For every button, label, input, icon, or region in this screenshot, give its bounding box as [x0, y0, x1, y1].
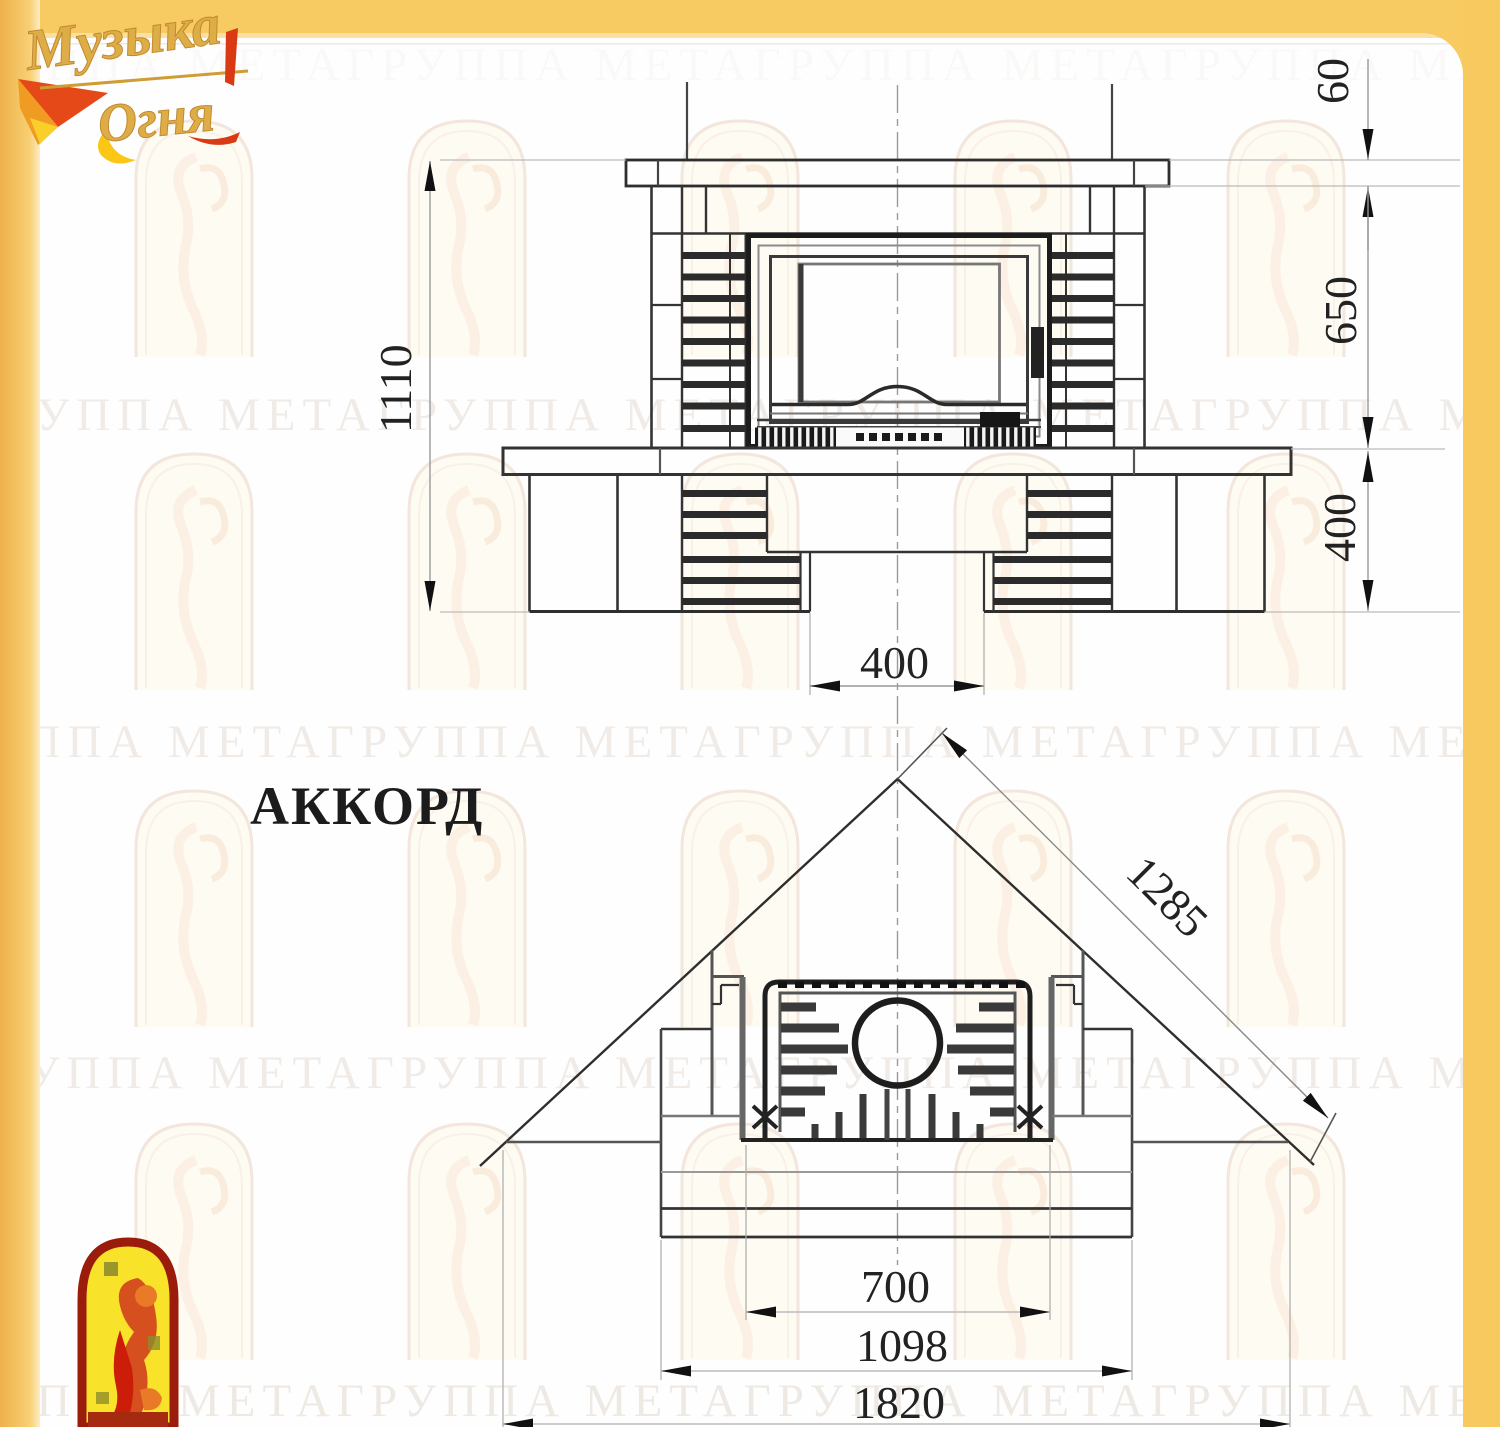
svg-text:60: 60	[1307, 58, 1358, 104]
svg-text:ГРУППА МЕТАГРУППА МЕТАГРУППА М: ГРУППА МЕТАГРУППА МЕТАГРУППА МЕТАГРУППА …	[0, 716, 1500, 768]
svg-text:700: 700	[861, 1261, 930, 1312]
svg-text:ГРУППА МЕТАГРУППА МЕТАГРУППА М: ГРУППА МЕТАГРУППА МЕТАГРУППА МЕТАГРУППА …	[0, 39, 1500, 91]
svg-text:400: 400	[1314, 493, 1365, 562]
svg-text:1110: 1110	[370, 344, 421, 433]
svg-text:АККОРД: АККОРД	[250, 776, 484, 836]
svg-text:ГРУППА МЕТАГРУППА МЕТАГРУППА М: ГРУППА МЕТАГРУППА МЕТАГРУППА МЕТАГРУППА …	[0, 1375, 1500, 1427]
svg-text:ГРУППА МЕТАГРУППА МЕТАГРУППА М: ГРУППА МЕТАГРУППА МЕТАГРУППА МЕТАГРУППА …	[0, 1047, 1500, 1099]
svg-text:400: 400	[860, 637, 929, 688]
svg-text:1098: 1098	[856, 1320, 948, 1371]
svg-text:650: 650	[1315, 276, 1366, 345]
svg-text:1820: 1820	[853, 1377, 945, 1427]
svg-text:Огня: Огня	[95, 82, 217, 154]
